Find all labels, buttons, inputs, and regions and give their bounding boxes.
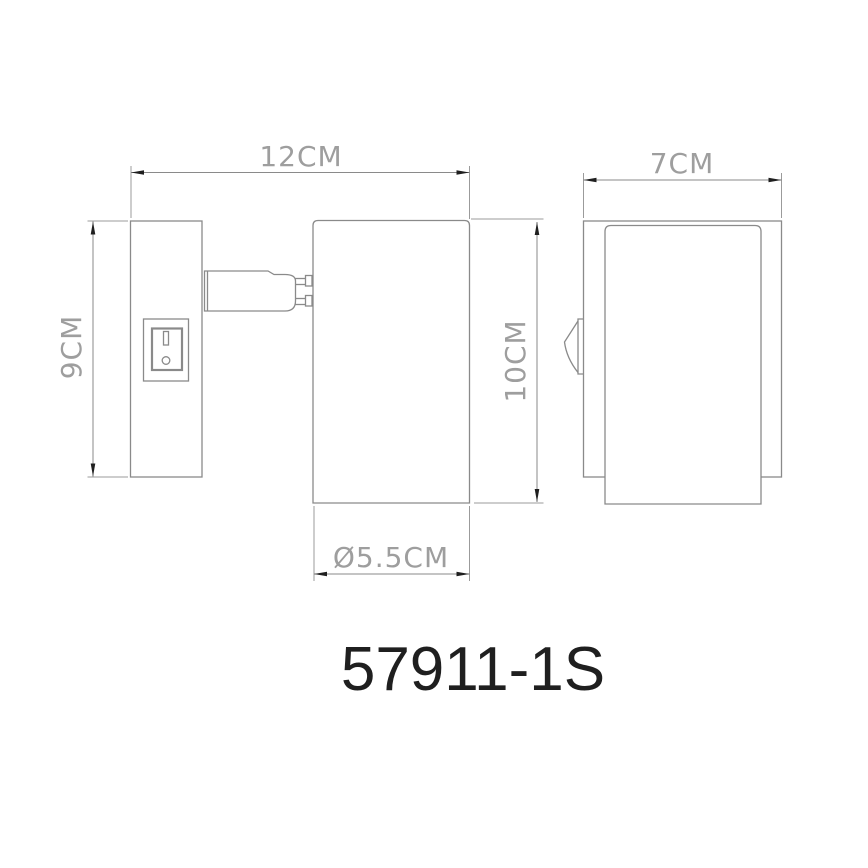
arrow-up-icon xyxy=(91,222,96,235)
side-lamp-cylinder xyxy=(605,226,761,505)
arrow-left-icon xyxy=(584,178,597,183)
arrow-right-icon xyxy=(769,178,782,183)
side-switch-housing xyxy=(578,319,584,374)
arrow-right-icon xyxy=(457,170,470,175)
dimension-label-overall-width: 12CM xyxy=(259,140,342,173)
front-wall-plate xyxy=(131,221,203,477)
arrow-left-icon xyxy=(131,170,144,175)
dimension-overall-width: 12CM xyxy=(131,140,470,219)
front-lamp-cylinder xyxy=(313,221,470,504)
front-view xyxy=(131,221,470,504)
switch-off-mark-icon xyxy=(162,357,170,365)
side-switch-rocker-profile xyxy=(565,321,579,373)
dimension-overall-depth: 7CM xyxy=(584,147,782,218)
arrow-down-icon xyxy=(91,464,96,477)
arrow-down-icon xyxy=(535,489,540,502)
connector-pins xyxy=(296,276,313,307)
dimension-plate-height: 9CM xyxy=(55,221,128,477)
side-view xyxy=(565,221,782,504)
arrow-right-icon xyxy=(457,572,470,577)
dimension-label-overall-depth: 7CM xyxy=(650,147,715,180)
product-code: 57911-1S xyxy=(341,635,605,704)
dimension-body-diameter: Ø5.5CM xyxy=(314,506,470,581)
arrow-up-icon xyxy=(535,222,540,235)
technical-drawing: 12CM 9CM 10CM Ø5.5CM 7CM 57911-1S xyxy=(0,0,868,868)
dimension-label-body-diameter: Ø5.5CM xyxy=(333,541,449,574)
switch-on-mark-icon xyxy=(164,332,169,346)
dimension-body-height: 10CM xyxy=(471,219,544,503)
drawing-sheet: 12CM 9CM 10CM Ø5.5CM 7CM 57911-1S xyxy=(0,0,868,868)
dimension-label-body-height: 10CM xyxy=(499,319,532,402)
dimension-label-plate-height: 9CM xyxy=(55,315,88,380)
pivot-arm xyxy=(205,271,296,311)
arrow-left-icon xyxy=(314,572,327,577)
